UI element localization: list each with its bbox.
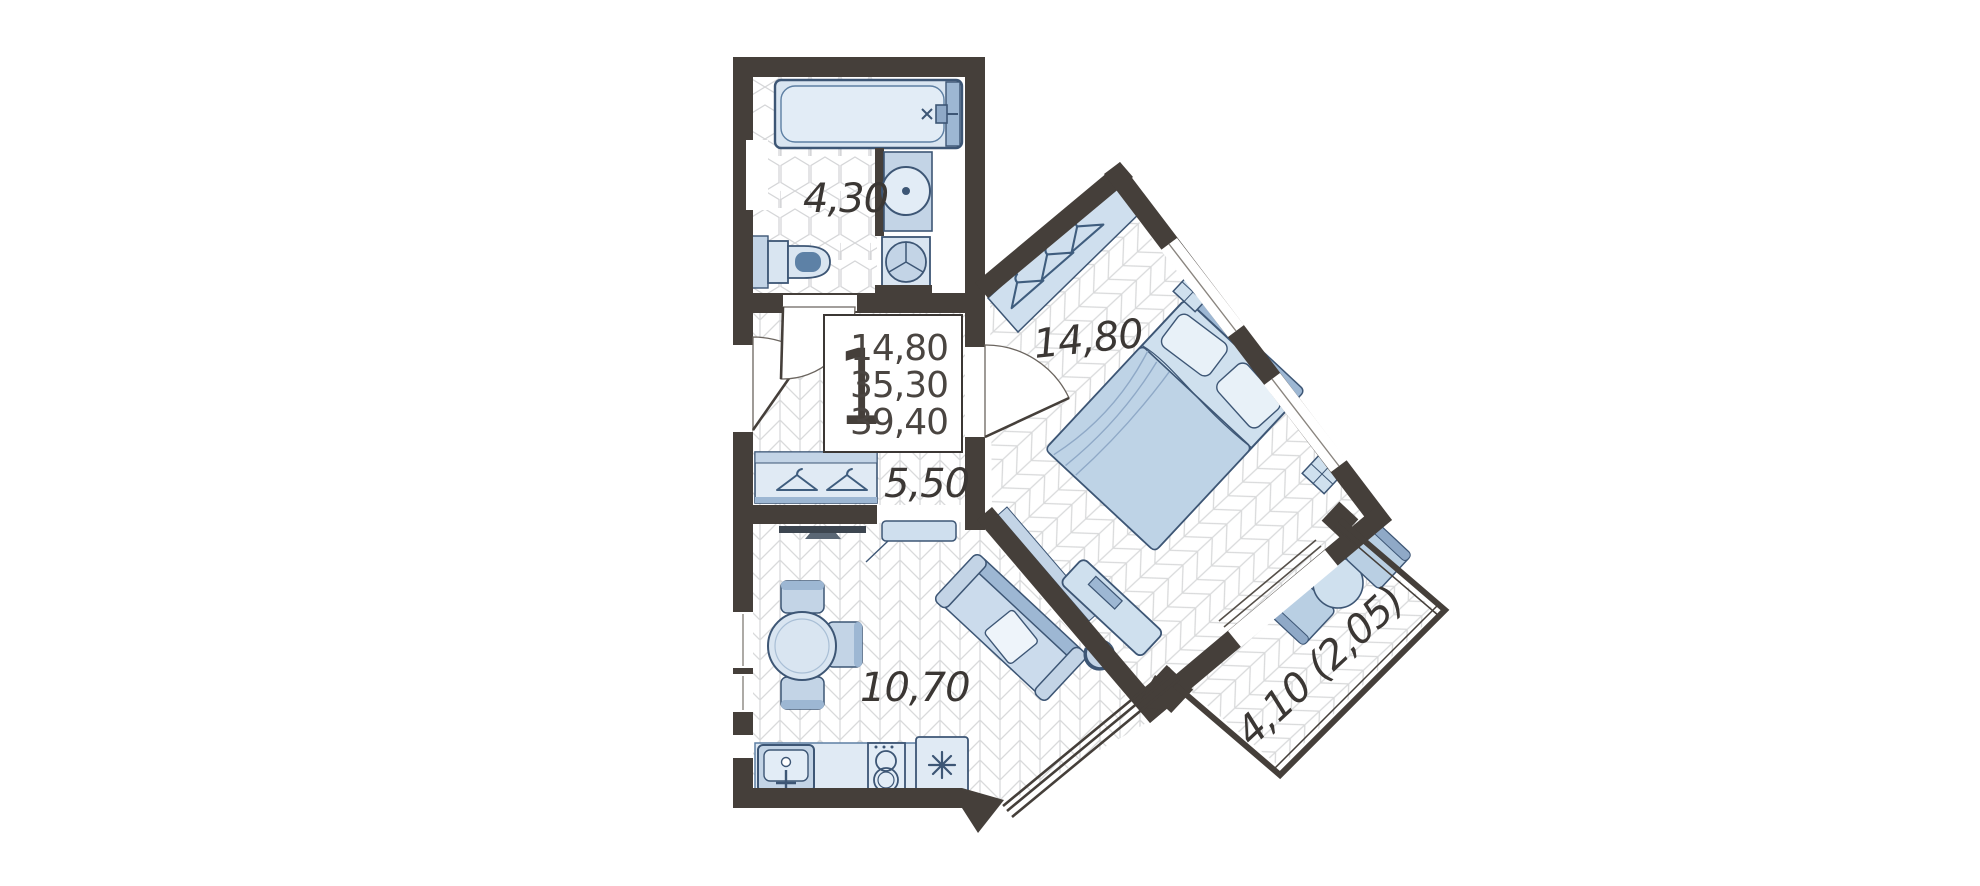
wall-bath-niche xyxy=(875,285,932,293)
floor-plan-svg: 1 14,80 35,30 39,40 4,30 5,50 10,70 14,8… xyxy=(0,0,1980,886)
floor-plan-page: 1 14,80 35,30 39,40 4,30 5,50 10,70 14,8… xyxy=(0,0,1980,886)
bathroom-wall-niche xyxy=(746,140,768,210)
dining-chair xyxy=(781,581,824,613)
drain-icon xyxy=(782,758,791,767)
wall-right xyxy=(965,57,985,530)
kitchen-living-area-label: 10,70 xyxy=(860,665,970,711)
wall-top xyxy=(733,57,985,77)
snowflake-icon xyxy=(929,752,955,778)
stove xyxy=(868,743,905,793)
fridge xyxy=(916,737,968,793)
drain-icon xyxy=(902,187,910,195)
unit-info-card: 1 14,80 35,30 39,40 xyxy=(824,315,962,452)
bedroom-door-opening xyxy=(965,347,985,437)
wall-bottom xyxy=(733,788,962,808)
total-area-value: 39,40 xyxy=(850,402,948,443)
dining-chair xyxy=(781,677,824,709)
entry-door-opening xyxy=(733,345,753,432)
bathroom-area-label: 4,30 xyxy=(803,176,888,222)
kitchen-row xyxy=(755,737,968,793)
washbasin xyxy=(882,152,932,231)
dining-table xyxy=(768,612,836,680)
kitchen-sink xyxy=(758,745,814,792)
bathtub xyxy=(775,80,962,148)
living-area-value: 14,80 xyxy=(850,328,948,369)
hallway-wardrobe xyxy=(755,452,877,503)
floor-area-value: 35,30 xyxy=(850,365,948,406)
living-window xyxy=(733,735,753,758)
wall-hall-living xyxy=(733,505,877,524)
washing-machine xyxy=(882,237,930,287)
hallway-area-label: 5,50 xyxy=(884,461,969,507)
